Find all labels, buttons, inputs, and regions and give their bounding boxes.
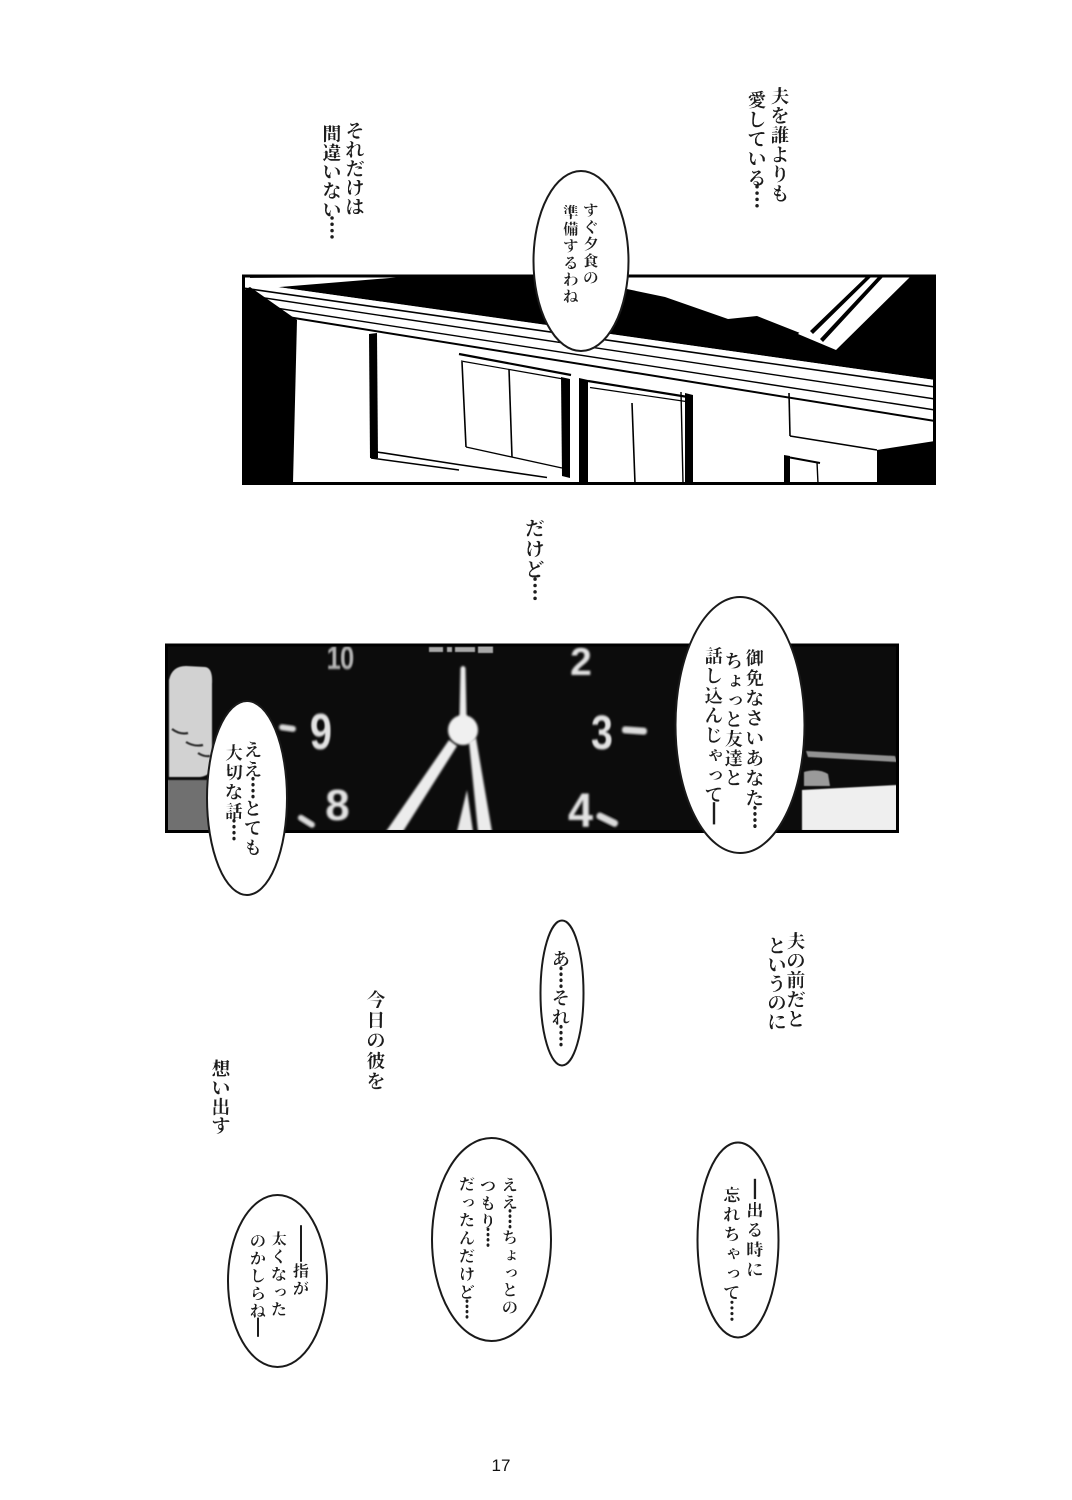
svg-text:4: 4 — [568, 784, 593, 838]
svg-text:3: 3 — [591, 706, 613, 760]
svg-text:17: 17 — [492, 1456, 511, 1475]
svg-text:8: 8 — [325, 781, 349, 830]
svg-text:9: 9 — [310, 703, 332, 760]
svg-text:10: 10 — [327, 641, 354, 676]
svg-text:2: 2 — [570, 641, 592, 684]
